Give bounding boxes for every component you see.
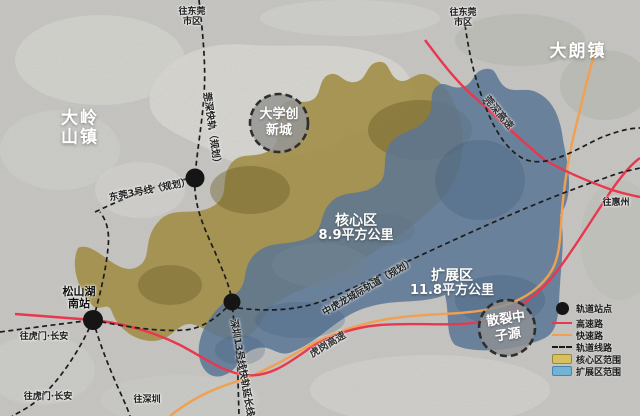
legend-item-fast-road: 快速路 xyxy=(551,329,621,341)
town-label-dalingshan: 大岭 山镇 xyxy=(61,109,99,146)
extension-zone-label: 扩展区 11.8平方公里 xyxy=(410,269,494,299)
core-zone-label: 核心区 8.9平方公里 xyxy=(318,214,393,244)
fast-road-line-icon xyxy=(552,334,572,336)
planning-map: 大岭 山镇 大朗镇 大学创 新城 散裂中 子源 核心区 8.9平方公里 扩展区 … xyxy=(0,0,640,416)
legend-item-extension-zone: 扩展区范围 xyxy=(551,365,621,377)
university-city-label: 大学创 新城 xyxy=(259,107,298,140)
station-label-songshanhu-south: 松山湖 南站 xyxy=(63,286,96,310)
expressway-line-icon xyxy=(552,322,572,324)
town-label-dalang: 大朗镇 xyxy=(550,43,607,62)
direction-to-humen-changan-southwest: 往虎门·长安 xyxy=(24,393,72,403)
rail-line-icon xyxy=(552,346,572,348)
legend-item-rail-line: 轨道线路 xyxy=(551,341,621,353)
core-zone-swatch-icon xyxy=(552,354,572,364)
rail-station-icon xyxy=(556,302,569,315)
map-legend: 轨道站点 高速路 快速路 轨道线路 核心区范围 扩展区范围 xyxy=(551,299,621,377)
legend-item-expressway: 高速路 xyxy=(551,317,621,329)
extension-zone-swatch-icon xyxy=(552,366,572,376)
direction-to-huizhou: 往惠州 xyxy=(602,199,629,209)
direction-to-shenzhen: 往深圳 xyxy=(133,396,160,406)
legend-item-rail-station: 轨道站点 xyxy=(551,299,621,317)
neutron-source-label: 散裂中 子源 xyxy=(485,309,528,347)
legend-item-core-zone: 核心区范围 xyxy=(551,353,621,365)
direction-to-humen-changan-west: 往虎门·长安 xyxy=(20,333,68,343)
direction-to-dongguan-nw: 往东莞 市区 xyxy=(178,8,205,28)
direction-to-dongguan-ne: 往东莞 市区 xyxy=(449,9,476,29)
